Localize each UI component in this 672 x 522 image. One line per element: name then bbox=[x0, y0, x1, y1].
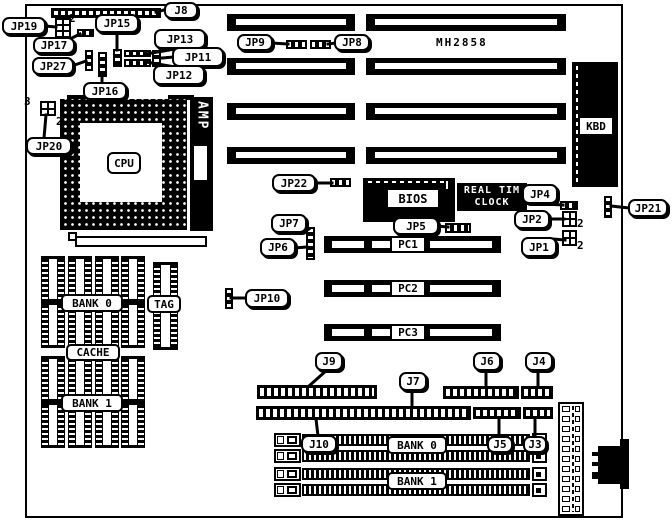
callout-j6: J6 bbox=[473, 352, 501, 371]
callout-jp16: JP16 bbox=[83, 82, 127, 100]
callout-jp11: JP11 bbox=[172, 47, 224, 67]
callout-j4: J4 bbox=[525, 352, 553, 371]
callout-jp13: JP13 bbox=[154, 29, 206, 49]
callout-jp5: JP5 bbox=[393, 217, 439, 235]
callout-jp4: JP4 bbox=[522, 184, 558, 204]
callout-j10: J10 bbox=[301, 435, 337, 453]
motherboard-diagram: MH2858 KBD CPU AMP B bbox=[0, 0, 672, 522]
callout-jp21: JP21 bbox=[628, 199, 668, 217]
callout-jp6: JP6 bbox=[260, 238, 296, 257]
callout-jp15: JP15 bbox=[95, 14, 139, 33]
callout-jp1: JP1 bbox=[521, 237, 557, 257]
callout-jp2: JP2 bbox=[514, 210, 550, 229]
callout-jp22: JP22 bbox=[272, 174, 316, 192]
callout-j8: J8 bbox=[164, 2, 198, 19]
callout-j3: J3 bbox=[523, 436, 547, 453]
callout-jp8: JP8 bbox=[334, 34, 370, 51]
callout-jp19: JP19 bbox=[2, 17, 46, 35]
callout-j7: J7 bbox=[399, 372, 427, 391]
callout-j9: J9 bbox=[315, 352, 343, 371]
callout-jp27: JP27 bbox=[32, 57, 74, 75]
callout-jp17: JP17 bbox=[33, 37, 75, 54]
callout-jp7: JP7 bbox=[271, 214, 307, 233]
callout-jp9: JP9 bbox=[237, 34, 273, 51]
callout-jp20: JP20 bbox=[26, 137, 72, 155]
callout-jp12: JP12 bbox=[153, 65, 205, 85]
callout-jp10: JP10 bbox=[245, 289, 289, 308]
callout-j5: J5 bbox=[487, 436, 513, 453]
